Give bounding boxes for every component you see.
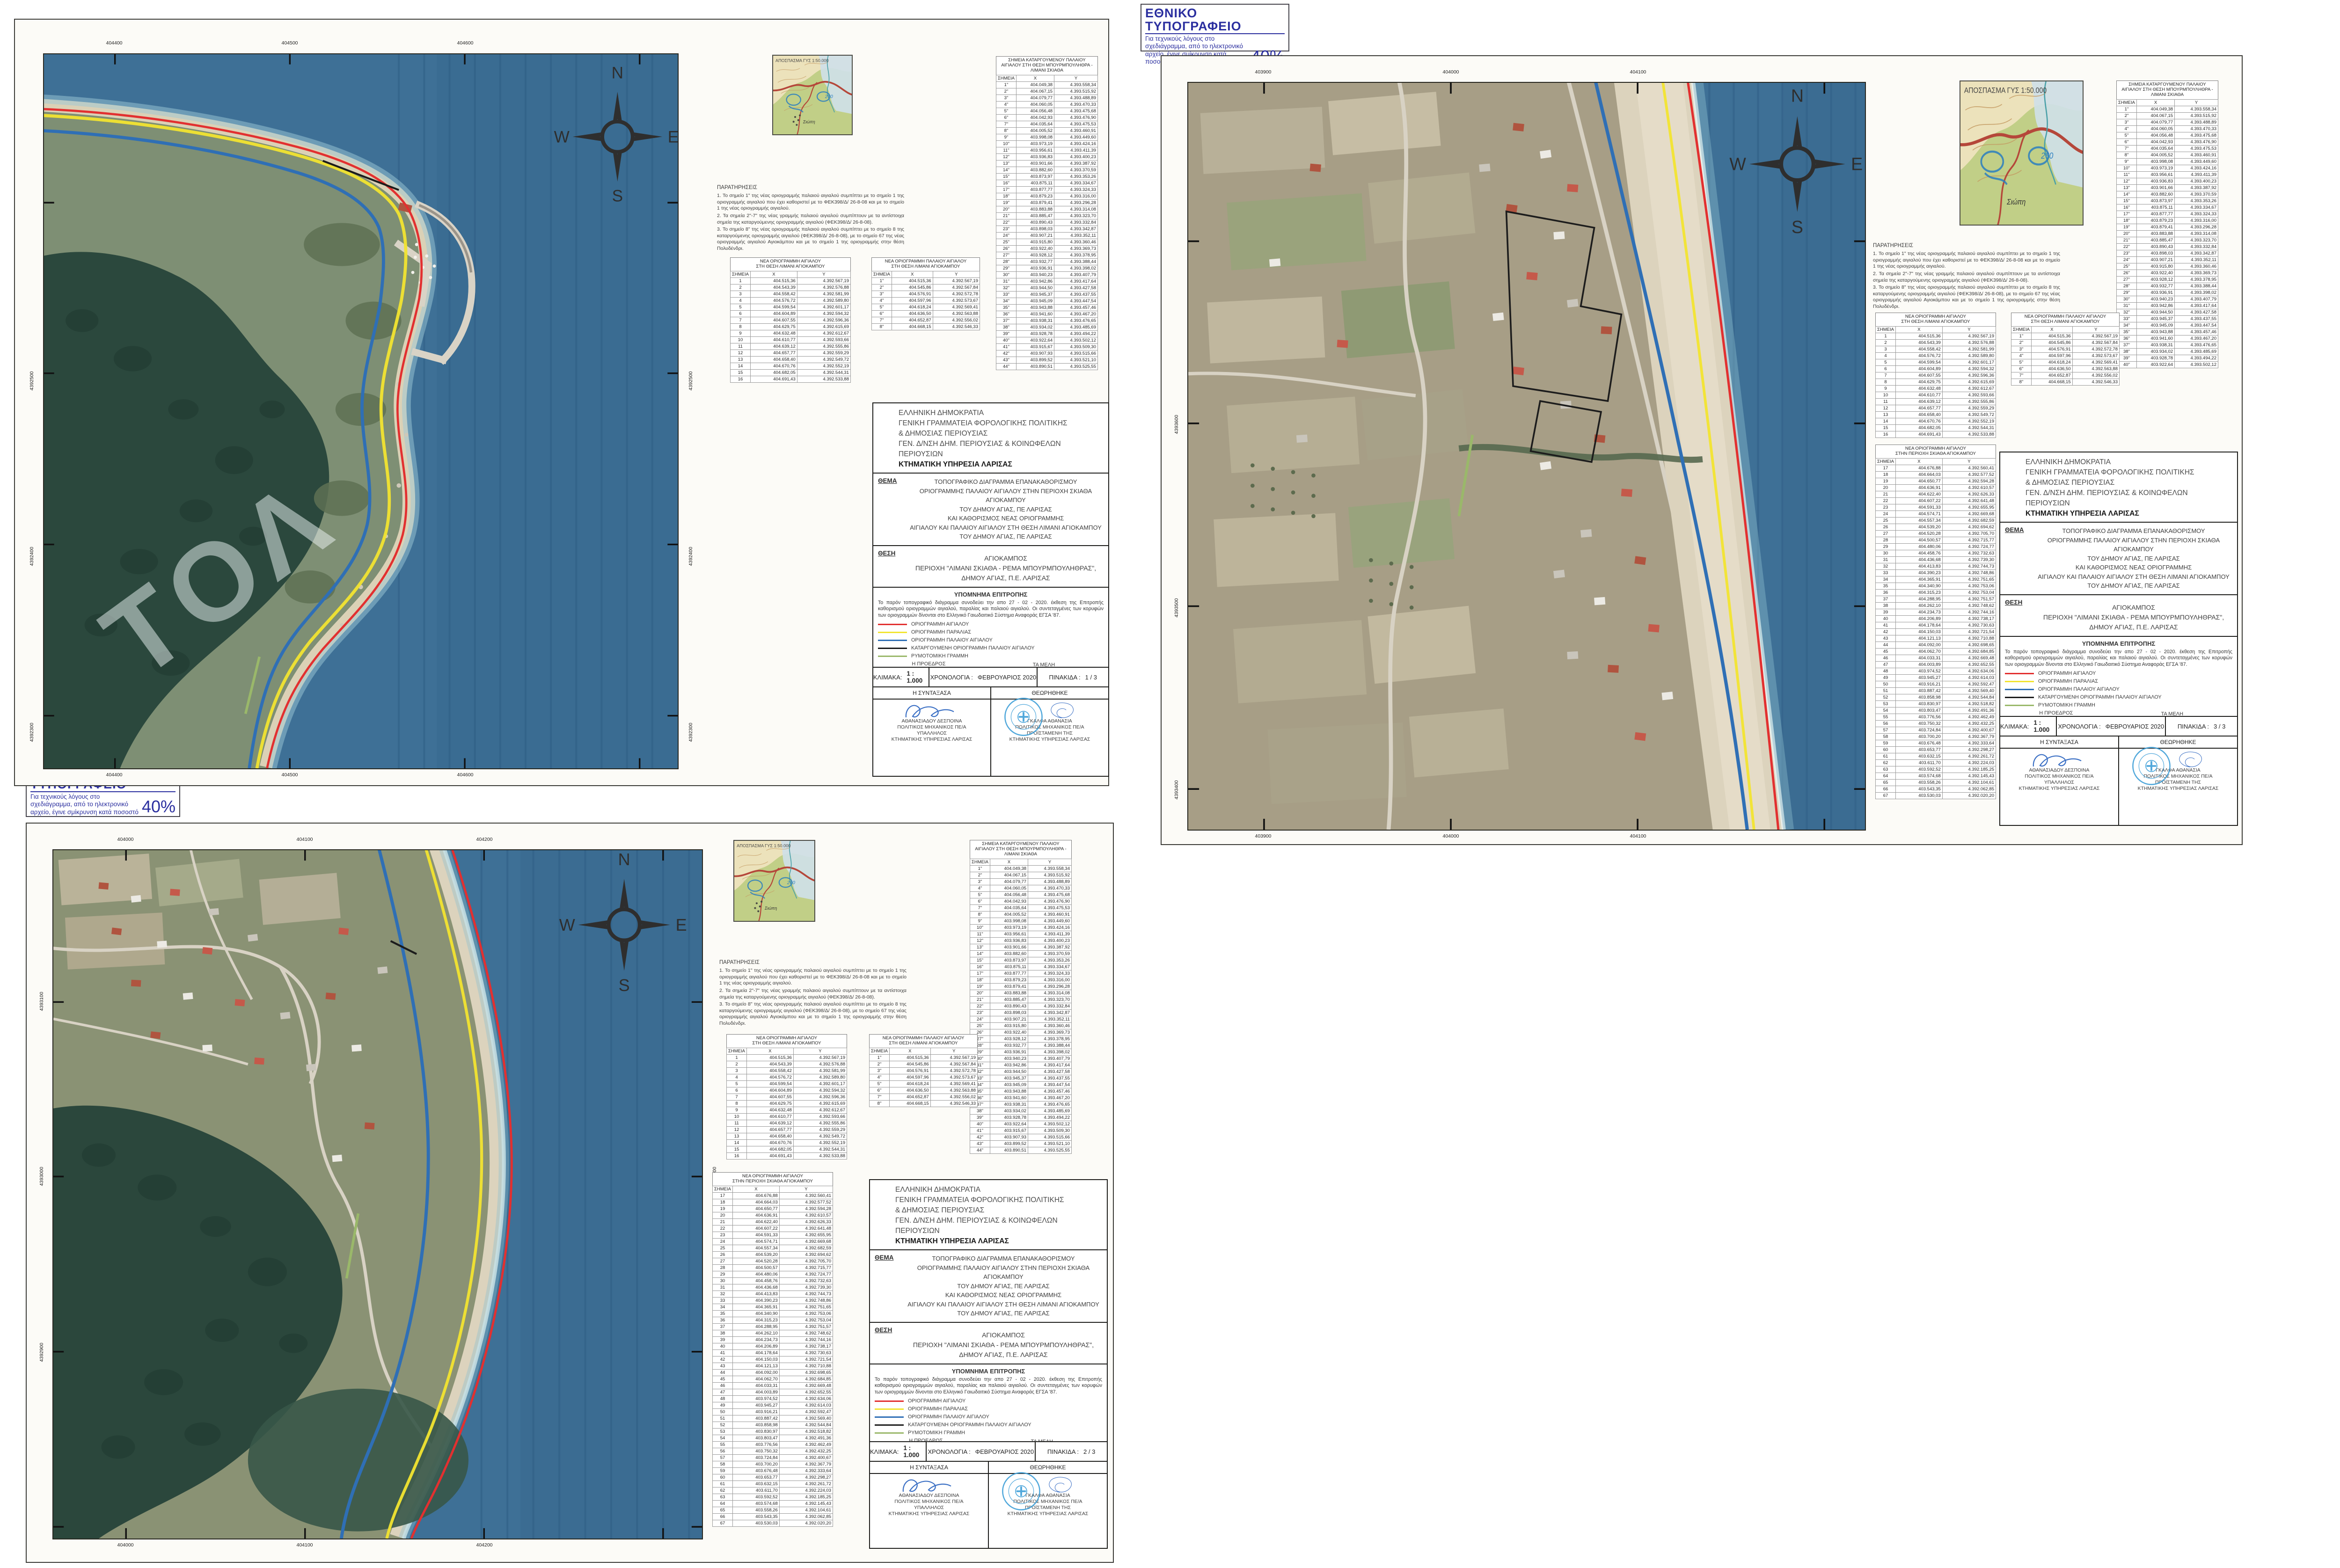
table-cell: 4.392.491,36 — [1942, 707, 1996, 714]
table-cell: 403.934,02 — [990, 1108, 1028, 1114]
table-cell: 4.392.738,17 — [779, 1343, 833, 1349]
table-cell: 32" — [996, 284, 1016, 291]
table-cell: 404.092,00 — [733, 1369, 780, 1376]
northing-label: 4392400 — [688, 547, 694, 566]
table-cell: 4.393.447,54 — [2175, 322, 2218, 328]
table-cell: 11" — [970, 931, 990, 937]
table-cell: 4.393.324,33 — [1054, 186, 1098, 193]
note-item: 3. Το σημείο 8" της νέας οριογραμμής παλ… — [717, 226, 904, 252]
table-row: 6"404.636,504.392.563,88 — [2011, 365, 2120, 372]
easting-label: 404000 — [1442, 833, 1459, 839]
table-row: 28404.500,574.392.715,77 — [1876, 537, 1996, 543]
table-cell: 403.936,91 — [1016, 265, 1054, 271]
table-row: 2"404.545,864.392.567,84 — [872, 284, 980, 291]
table-cell: 403.592,52 — [733, 1494, 780, 1500]
table-cell: 4.392.333,64 — [779, 1467, 833, 1474]
table-cell: 403.928,78 — [2137, 355, 2175, 361]
table-cell: 43" — [996, 357, 1016, 363]
legend: ΟΡΙΟΓΡΑΜΜΗ ΑΙΓΙΑΛΟΥ ΟΡΙΟΓΡΑΜΜΗ ΠΑΡΑΛΙΑΣ … — [2005, 671, 2232, 708]
table-cell: 404.574,71 — [733, 1238, 780, 1245]
table-cell: 4.393.334,67 — [1028, 963, 1072, 970]
table-cell: 4" — [2117, 125, 2137, 132]
table-row: 27404.520,284.392.705,70 — [1876, 530, 1996, 537]
table-cell: 404.610,77 — [751, 336, 797, 343]
table-row: 47404.003,894.392.652,55 — [1876, 661, 1996, 668]
table-cell: 404.599,54 — [1896, 359, 1943, 365]
table-cell: 404.639,12 — [747, 1120, 794, 1126]
table-row: 31404.436,684.392.739,30 — [713, 1284, 833, 1291]
table-cell: 20" — [970, 990, 990, 996]
table-cell: 404.413,83 — [1896, 563, 1943, 569]
table-cell: 4.392.614,03 — [1942, 674, 1996, 681]
table-cell: 4.392.555,86 — [1942, 398, 1996, 405]
locator-caption: ΑΠΟΣΠΑΣΜΑ ΓΥΣ 1:50.000 — [737, 844, 790, 848]
table-cell: 4.393.437,55 — [2175, 315, 2218, 322]
table-cell: 4.392.753,04 — [1942, 589, 1996, 596]
table-row: 8"404.668,154.392.546,33 — [2011, 379, 2120, 385]
table-cell: 403.998,08 — [1016, 134, 1054, 140]
table-cell: 17" — [970, 970, 990, 977]
table-cell: 403.943,88 — [2137, 328, 2175, 335]
table-row: 13404.658,404.392.549,72 — [731, 356, 851, 363]
column-header: Y — [793, 1048, 847, 1054]
table-cell: 404.178,64 — [733, 1349, 780, 1356]
table-row: 41"403.915,674.393.509,30 — [996, 343, 1098, 350]
legend-swatch — [878, 632, 907, 633]
table-cell: 4.393.427,58 — [1028, 1068, 1072, 1075]
table-row: 42404.150,034.392.721,54 — [1876, 628, 1996, 635]
table-row: 37"403.938,314.393.476,65 — [970, 1101, 1072, 1108]
table-cell: 4.393.494,22 — [2175, 355, 2218, 361]
table-cell: 4.393.342,87 — [1028, 1009, 1072, 1016]
table-cell: 4 — [727, 1074, 747, 1080]
table-cell: 404.652,87 — [892, 317, 933, 323]
northing-label: 4393400 — [1174, 780, 1179, 800]
table-cell: 403.724,84 — [1896, 727, 1943, 733]
table-row: 27404.520,284.392.705,70 — [713, 1258, 833, 1264]
compass-w-label: W — [554, 128, 570, 146]
table-cell: 404.657,77 — [751, 350, 797, 356]
table-cell: 404.591,33 — [1896, 504, 1943, 511]
table-row: 52403.858,984.392.544,84 — [713, 1422, 833, 1428]
table-row: 5"404.056,484.393.475,68 — [2117, 132, 2218, 139]
table-cell: 45 — [713, 1376, 733, 1382]
table-cell: 403.676,48 — [1896, 740, 1943, 746]
table-cell: 62 — [713, 1487, 733, 1494]
table-cell: 45 — [1876, 648, 1896, 655]
plate-label: ΠΙΝΑΚΙΔΑ : — [2178, 723, 2209, 730]
compass-n-label: N — [1791, 86, 1804, 106]
table-cell: 403.907,21 — [990, 1016, 1028, 1022]
table-row: 61403.632,154.392.261,72 — [1876, 753, 1996, 759]
thema-section: ΘΕΜΑ ΤΟΠΟΓΡΑΦΙΚΟ ΔΙΑΓΡΑΜΜΑ ΕΠΑΝΑΚΑΘΟΡΙΣΜ… — [873, 474, 1108, 546]
approver-signature: ΓΚΑΛΦΑ ΑΘΑΝΑΣΙΑ ΠΟΛΙΤΙΚΟΣ ΜΗΧΑΝΙΚΟΣ ΠΕ/Α… — [989, 1474, 1107, 1548]
table-cell: 403.882,60 — [2137, 191, 2175, 197]
table-cell: 4.392.610,57 — [1942, 484, 1996, 491]
easting-label: 404000 — [117, 1542, 133, 1548]
table-row: 31"403.942,864.393.417,64 — [2117, 302, 2218, 309]
table-cell: 404.670,76 — [747, 1139, 794, 1146]
signature-cells: ΑΘΑΝΑΣΙΑΔΟΥ ΔΕΣΠΟΙΝΑ ΠΟΛΙΤΙΚΟΣ ΜΗΧΑΝΙΚΟΣ… — [2000, 749, 2237, 825]
table-cell: 4.392.581,99 — [793, 1067, 847, 1074]
table-cell: 4.392.705,70 — [779, 1258, 833, 1264]
table-cell: 23 — [713, 1232, 733, 1238]
table-cell: 13 — [731, 356, 751, 363]
plate-number: 1 / 3 — [1085, 674, 1097, 681]
easting-label: 404000 — [117, 837, 133, 842]
table-cell: 64 — [713, 1500, 733, 1507]
table-cell: 4.392.560,41 — [1942, 465, 1996, 471]
table-cell: 403.928,12 — [1016, 252, 1054, 258]
date-value: ΦΕΒΡΟΥΑΡΙΟΣ 2020 — [978, 674, 1036, 681]
table-cell: 403.875,11 — [2137, 204, 2175, 211]
committee-members: ΤΑ ΜΕΛΗ 2.ΚΩΝΣΤΑΝΤΑ ΒΑΣΙΛΙΚΗ 3.ΑΘΑΝΑΣΙΑΔ… — [2107, 710, 2232, 716]
thema-label: ΘΕΜΑ — [873, 474, 907, 545]
table-row: 19404.650,774.392.594,28 — [713, 1205, 833, 1212]
table-cell: 4.393.476,90 — [1028, 898, 1072, 904]
table-row: 11404.639,124.392.555,86 — [727, 1120, 847, 1126]
table-cell: 4.393.388,44 — [1054, 258, 1098, 265]
table-cell: 404.056,48 — [1016, 108, 1054, 114]
table-cell: 4.393.411,39 — [1054, 147, 1098, 153]
table-cell: 37" — [996, 317, 1016, 324]
table-row: 8"404.668,154.392.546,33 — [870, 1100, 978, 1107]
table-cell: 4.393.476,65 — [1054, 317, 1098, 324]
table-cell: 404.515,36 — [751, 277, 797, 284]
northing-label: 4393000 — [39, 1167, 44, 1186]
table-row: 22404.607,224.392.641,48 — [1876, 497, 1996, 504]
table-cell: 42 — [1876, 628, 1896, 635]
table-cell: 66 — [1876, 786, 1896, 792]
table-cell: 4.392.518,82 — [779, 1428, 833, 1435]
table-row: 42404.150,034.392.721,54 — [713, 1356, 833, 1363]
table-cell: 4.393.457,46 — [1054, 304, 1098, 311]
pen-note: 260 — [2040, 151, 2053, 160]
table-row: 59403.676,484.392.333,64 — [1876, 740, 1996, 746]
table-cell: 403.873,97 — [990, 957, 1028, 963]
agency-header: ΕΛΛΗΝΙΚΗ ΔΗΜΟΚΡΑΤΙΑ ΓΕΝΙΚΗ ΓΡΑΜΜΑΤΕΙΑ ΦΟ… — [870, 1180, 1107, 1250]
table-cell: 4" — [996, 101, 1016, 108]
table-cell: 403.907,21 — [1016, 232, 1054, 239]
table-cell: 403.700,20 — [1896, 733, 1943, 740]
table-cell: 404.676,88 — [1896, 465, 1943, 471]
table-cell: 403.945,27 — [733, 1402, 780, 1408]
table-cell: 1" — [870, 1054, 890, 1061]
table-cell: 403.940,23 — [1016, 271, 1054, 278]
table-cell: 403.901,66 — [990, 944, 1028, 950]
table-row: 43"403.899,524.393.521,10 — [970, 1140, 1072, 1147]
table-row: 6404.604,894.392.594,32 — [731, 310, 851, 317]
table-cell: 21" — [970, 996, 990, 1003]
table-cell: 21 — [713, 1218, 733, 1225]
table-cell: 403.858,98 — [733, 1422, 780, 1428]
table-cell: 404.206,89 — [1896, 615, 1943, 622]
table-cell: 4" — [870, 1074, 890, 1080]
table-cell: 3 — [731, 291, 751, 297]
table-row: 38"403.934,024.393.485,69 — [996, 324, 1098, 330]
table-cell: 403.934,02 — [2137, 348, 2175, 355]
table-row: 18"403.879,234.393.316,00 — [996, 193, 1098, 199]
table-row: 6"404.042,934.393.476,90 — [970, 898, 1072, 904]
table-cell: 404.636,50 — [2032, 365, 2073, 372]
table-cell: 404.545,86 — [2032, 339, 2073, 346]
table-cell: 403.940,23 — [990, 1055, 1028, 1062]
table-cell: 4.392.563,88 — [930, 1087, 977, 1094]
table-row: 40404.206,894.392.738,17 — [713, 1343, 833, 1349]
table-row: 3"404.576,914.392.572,78 — [2011, 346, 2120, 352]
table-cell: 404.005,52 — [2137, 152, 2175, 158]
table-row: 1"404.515,364.392.567,19 — [870, 1054, 978, 1061]
table-cell: 33 — [1876, 569, 1896, 576]
table-cell: 39" — [996, 330, 1016, 337]
table-cell: 4.393.460,91 — [2175, 152, 2218, 158]
table-cell: 6" — [970, 898, 990, 904]
table-row: 31"403.942,864.393.417,64 — [996, 278, 1098, 284]
table-row: 48403.974,524.392.634,06 — [1876, 668, 1996, 674]
table-cell: 16" — [970, 963, 990, 970]
legend-swatch — [875, 1416, 904, 1418]
aerial-photo-svg: N E S W — [1188, 83, 1865, 830]
table-cell: 4.393.457,46 — [1028, 1088, 1072, 1094]
table-cell: 22" — [2117, 243, 2137, 250]
easting-label: 404200 — [476, 1542, 492, 1548]
table-cell: 16 — [727, 1152, 747, 1159]
table-cell: 4.393.485,69 — [1028, 1108, 1072, 1114]
table-cell: 403.776,56 — [1896, 714, 1943, 720]
table-cell: 403.932,77 — [2137, 283, 2175, 289]
table-title: ΝΕΑ ΟΡΙΟΓΡΑΜΜΗ ΑΙΓΙΑΛΟΥΣΤΗ ΘΕΣΗ ΛΙΜΑΝΙ Α… — [726, 1034, 847, 1048]
thesi-text: ΑΓΙΟΚΑΜΠΟΣ ΠΕΡΙΟΧΗ "ΛΙΜΑΝΙ ΣΚΙΑΘΑ - ΡΕΜΑ… — [907, 546, 1108, 587]
table-cell: 36" — [996, 311, 1016, 317]
table-cell: 404.060,05 — [990, 885, 1028, 891]
table-row: 38404.262,104.392.748,62 — [1876, 602, 1996, 609]
table-row: 33404.390,234.392.748,86 — [1876, 569, 1996, 576]
table-cell: 4.392.596,36 — [1942, 372, 1996, 379]
table-row: 11404.639,124.392.555,86 — [731, 343, 851, 350]
table-cell: 403.530,03 — [733, 1520, 780, 1526]
table-cell: 4.392.062,85 — [779, 1513, 833, 1520]
table-cell: 12 — [1876, 405, 1896, 411]
table-row: 11"403.956,614.393.411,39 — [996, 147, 1098, 153]
table-cell: 404.629,75 — [1896, 379, 1943, 385]
table-cell: 403.941,60 — [990, 1094, 1028, 1101]
table-cell: 403.898,03 — [2137, 250, 2175, 256]
table-row: 2"404.067,154.393.515,92 — [996, 88, 1098, 95]
date-label: ΧΡΟΝΟΛΟΓΙΑ : — [928, 1448, 971, 1455]
table-cell: 4.393.475,68 — [2175, 132, 2218, 139]
table-cell: 403.922,40 — [1016, 245, 1054, 252]
table-row: 35"403.943,884.393.457,46 — [996, 304, 1098, 311]
aerial-map-harbor: ΤΟΛ N E S W — [43, 53, 679, 769]
table-cell: 4.392.533,88 — [797, 376, 850, 382]
table-cell: 4.393.316,00 — [1028, 977, 1072, 983]
table-cell: 403.945,37 — [1016, 291, 1054, 298]
table-cell: 4.393.494,22 — [1028, 1114, 1072, 1121]
table-cell: 403.928,12 — [2137, 276, 2175, 283]
table-cell: 4.393.400,23 — [1028, 937, 1072, 944]
table-cell: 9 — [1876, 385, 1896, 392]
table-cell: 4.392.732,63 — [1942, 550, 1996, 556]
table-new-shoreline-continued: ΝΕΑ ΟΡΙΟΓΡΑΜΜΗ ΑΙΓΙΑΛΟΥΣΤΗΝ ΠΕΡΙΟΧΗ ΣΚΙΑ… — [1875, 445, 1996, 799]
table-row: 49403.945,274.392.614,03 — [1876, 674, 1996, 681]
table-cell: 404.607,22 — [1896, 497, 1943, 504]
table-cell: 403.899,52 — [1016, 357, 1054, 363]
table-cell: 404.618,24 — [892, 304, 933, 310]
table-cell: 4.392.614,03 — [779, 1402, 833, 1408]
table-row: 46404.033,314.392.669,48 — [713, 1382, 833, 1389]
column-header: ΣΗΜΕΙΑ — [970, 859, 990, 865]
table-cell: 21" — [996, 212, 1016, 219]
agency-line: & ΔΗΜΟΣΙΑΣ ΠΕΡΙΟΥΣΙΑΣ — [895, 1205, 1103, 1216]
table-row: 5404.599,544.392.601,17 — [731, 304, 851, 310]
table-cell: 4.392.652,55 — [1942, 661, 1996, 668]
table-row: 12404.657,774.392.559,29 — [731, 350, 851, 356]
column-header: X — [2032, 326, 2073, 333]
notes-block: ΠΑΡΑΤΗΡΗΣΕΙΣ 1. Το σημείο 1" της νέας ορ… — [717, 184, 904, 253]
sea-scanlines — [399, 54, 678, 768]
table-cell: 64 — [1876, 773, 1896, 779]
table-cell: 4.392.577,52 — [1942, 471, 1996, 478]
legend: ΟΡΙΟΓΡΑΜΜΗ ΑΙΓΙΑΛΟΥ ΟΡΙΟΓΡΑΜΜΗ ΠΑΡΑΛΙΑΣ … — [878, 621, 1104, 659]
table-cell: 4.392.518,82 — [1942, 700, 1996, 707]
table-cell: 14" — [2117, 191, 2137, 197]
table-cell: 43" — [970, 1140, 990, 1147]
table-cell: 403.543,35 — [733, 1513, 780, 1520]
table-cell: 4.392.333,64 — [1942, 740, 1996, 746]
table-cell: 6 — [1876, 365, 1896, 372]
table-cell: 4.392.556,02 — [933, 317, 980, 323]
table-row: 4"404.597,964.392.573,67 — [870, 1074, 978, 1080]
table-cell: 404.636,50 — [890, 1087, 931, 1094]
table-new-shoreline: ΝΕΑ ΟΡΙΟΓΡΑΜΜΗ ΑΙΓΙΑΛΟΥΣΤΗ ΘΕΣΗ ΛΙΜΑΝΙ Α… — [726, 1034, 847, 1160]
table-row: 16"403.875,114.393.334,67 — [2117, 204, 2218, 211]
table-cell: 4.392.563,88 — [2072, 365, 2119, 372]
table-row: 37"403.938,314.393.476,65 — [2117, 342, 2218, 348]
table-cell: 38 — [1876, 602, 1896, 609]
table-cell: 403.916,21 — [1896, 681, 1943, 687]
table-cell: 59 — [713, 1467, 733, 1474]
table-cell: 404.067,15 — [1016, 88, 1054, 95]
table-cell: 39 — [1876, 609, 1896, 615]
table-cell: 403.915,67 — [990, 1127, 1028, 1134]
table-cell: 404.079,77 — [1016, 95, 1054, 101]
table-row: 22"403.890,434.393.332,84 — [970, 1003, 1072, 1009]
easting-label: 404400 — [106, 40, 122, 46]
table-row: 43404.121,134.392.710,88 — [1876, 635, 1996, 642]
table-cell: 4.392.694,62 — [1942, 524, 1996, 530]
table-cell: 403.887,42 — [733, 1415, 780, 1422]
table-row: 5"404.618,244.392.569,41 — [872, 304, 980, 310]
table-cell: 4.392.559,29 — [797, 350, 850, 356]
table-row: 10404.610,774.392.593,66 — [1876, 392, 1996, 398]
thema-section: ΘΕΜΑ ΤΟΠΟΓΡΑΦΙΚΟ ΔΙΑΓΡΑΜΜΑ ΕΠΑΝΑΚΑΘΟΡΙΣΜ… — [870, 1250, 1107, 1323]
table-row: 34"403.945,094.393.447,54 — [2117, 322, 2218, 328]
table-cell: 4.392.589,80 — [1942, 352, 1996, 359]
table-cell: 4.393.324,33 — [2175, 211, 2218, 217]
table-cell: 404.557,34 — [1896, 517, 1943, 524]
table-cell: 403.956,61 — [990, 931, 1028, 937]
table-cell: 15 — [1876, 424, 1896, 431]
table-cell: 404.604,89 — [747, 1087, 794, 1094]
date-label: ΧΡΟΝΟΛΟΓΙΑ : — [930, 674, 973, 681]
table-cell: 18" — [970, 977, 990, 983]
table-row: 1"404.049,384.393.558,34 — [970, 865, 1072, 872]
table-row: 21404.622,404.392.626,33 — [1876, 491, 1996, 497]
table-cell: 404.632,48 — [751, 330, 797, 336]
table-cell: 9 — [731, 330, 751, 336]
table-cell: 10" — [2117, 165, 2137, 171]
table-cell: 4.392.601,17 — [793, 1080, 847, 1087]
table-cell: 4.392.462,49 — [1942, 714, 1996, 720]
table-row: 4"404.597,964.392.573,67 — [872, 297, 980, 304]
table-row: 62403.611,704.392.224,03 — [713, 1487, 833, 1494]
note-item: 1. Το σημείο 1" της νέας οριογραμμής παλ… — [719, 968, 907, 987]
table-row: 25"403.915,804.393.360,46 — [970, 1022, 1072, 1029]
table-cell: 403.574,68 — [1896, 773, 1943, 779]
easting-label: 404100 — [296, 837, 313, 842]
table-cell: 4.393.467,20 — [2175, 335, 2218, 342]
table-cell: 403.922,40 — [2137, 270, 2175, 276]
table-cell: 4" — [872, 297, 892, 304]
table-cell: 56 — [1876, 720, 1896, 727]
table-cell: 44 — [713, 1369, 733, 1376]
table-abolished-points: ΣΗΜΕΙΑ ΚΑΤΑΡΓΟΥΜΕΝΟΥ ΠΑΛΑΙΟΥΑΙΓΙΑΛΟΥ ΣΤΗ… — [2116, 80, 2218, 368]
table-row: 20"403.883,884.393.314,08 — [970, 990, 1072, 996]
table-cell: 5" — [2011, 359, 2032, 365]
table-cell: 403.936,83 — [2137, 178, 2175, 184]
table-cell: 37 — [1876, 596, 1896, 602]
notes-title: ΠΑΡΑΤΗΡΗΣΕΙΣ — [719, 959, 907, 966]
table-row: 10"403.973,194.393.424,16 — [2117, 165, 2218, 171]
table-row: 29404.480,064.392.724,77 — [713, 1271, 833, 1277]
table-row: 24404.574,714.392.669,68 — [1876, 511, 1996, 517]
table-cell: 4.392.744,73 — [1942, 563, 1996, 569]
table-cell: 404.458,76 — [1896, 550, 1943, 556]
table-cell: 4.392.552,19 — [1942, 418, 1996, 424]
signature-headers: Η ΣΥΝΤΑΞΑΣΑ ΘΕΩΡΗΘΗΚΕ — [2000, 737, 2237, 749]
table-cell: 404.576,91 — [2032, 346, 2073, 352]
table-cell: 4.392.732,63 — [779, 1277, 833, 1284]
table-cell: 27" — [996, 252, 1016, 258]
table-row: 12"403.936,834.393.400,23 — [996, 153, 1098, 160]
table-cell: 27 — [713, 1258, 733, 1264]
table-cell: 404.520,28 — [733, 1258, 780, 1264]
table-cell: 4.392.552,19 — [793, 1139, 847, 1146]
table-cell: 4.392.145,43 — [1942, 773, 1996, 779]
locator-topo-map: 260 ΑΠΟΣΠΑΣΜΑ ΓΥΣ 1:50.000 Σιώπη — [733, 840, 815, 922]
table-cell: 55 — [713, 1441, 733, 1448]
table-cell: 8" — [970, 911, 990, 918]
table-cell: 38 — [713, 1330, 733, 1336]
plate-label: ΠΙΝΑΚΙΔΑ : — [1049, 674, 1080, 681]
note-item: 3. Το σημείο 8" της νέας οριογραμμής παλ… — [1873, 284, 2060, 310]
table-cell: 403.928,78 — [1016, 330, 1054, 337]
table-cell: 4.392.104,61 — [779, 1507, 833, 1513]
table-cell: 4.393.342,87 — [2175, 250, 2218, 256]
table-cell: 404.060,05 — [1016, 101, 1054, 108]
table-row: 24"403.907,214.393.352,11 — [996, 232, 1098, 239]
table-title: ΣΗΜΕΙΑ ΚΑΤΑΡΓΟΥΜΕΝΟΥ ΠΑΛΑΙΟΥΑΙΓΙΑΛΟΥ ΣΤΗ… — [2116, 80, 2218, 99]
table-cell: 4.392.573,67 — [2072, 352, 2119, 359]
table-cell: 48 — [1876, 668, 1896, 674]
table-cell: 4.393.558,34 — [2175, 106, 2218, 112]
table-cell: 403.974,52 — [733, 1395, 780, 1402]
agency-line: ΕΛΛΗΝΙΚΗ ΔΗΜΟΚΡΑΤΙΑ — [899, 408, 1104, 418]
table-row: 25404.557,344.392.682,59 — [1876, 517, 1996, 524]
table-cell: 40" — [970, 1121, 990, 1127]
thema-label: ΘΕΜΑ — [870, 1250, 904, 1322]
table-cell: 4.393.411,39 — [2175, 171, 2218, 178]
